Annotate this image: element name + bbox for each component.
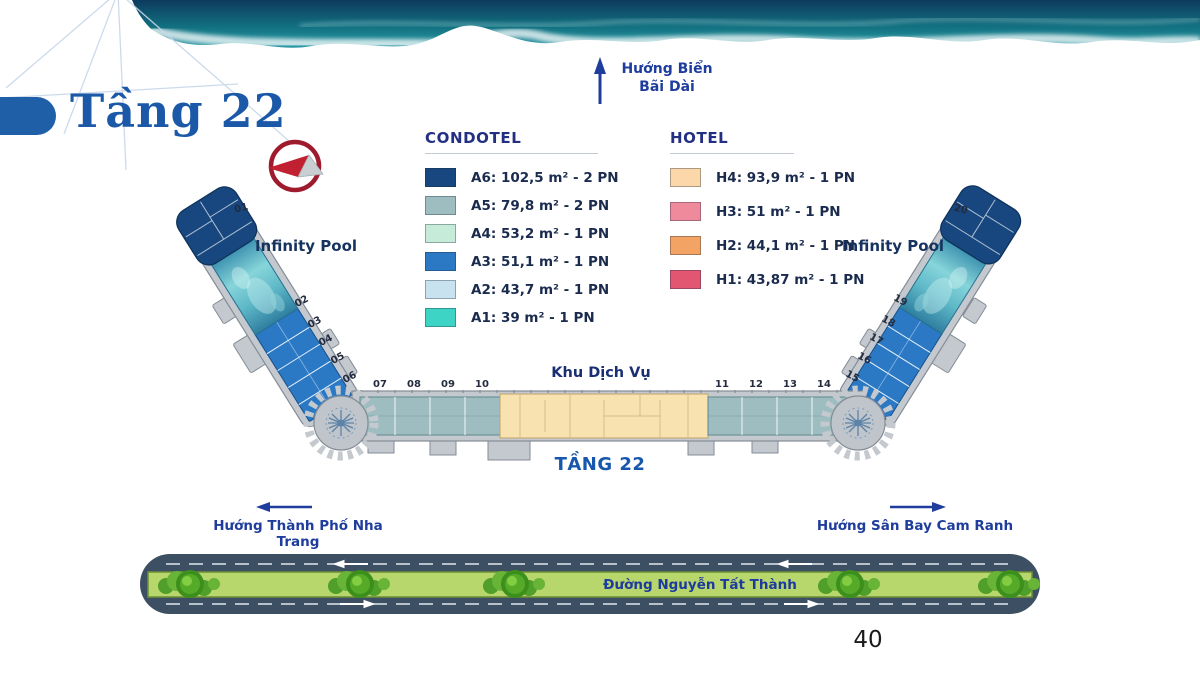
legend-item-a5: A5: 79,8 m² - 2 PN xyxy=(425,196,625,215)
sea-direction-label: Hướng Biển Bãi Dài xyxy=(612,61,722,97)
legend-item-h2: H2: 44,1 m² - 1 PN xyxy=(670,236,830,255)
legend-item-a2: A2: 43,7 m² - 1 PN xyxy=(425,280,625,299)
legend-label-h4: H4: 93,9 m² - 1 PN xyxy=(716,170,855,186)
sea-direction-line2: Bãi Dài xyxy=(612,79,722,97)
page-title: Tầng 22 xyxy=(70,84,287,138)
title-pill-decoration xyxy=(0,97,56,135)
legend-hotel-header: HOTEL xyxy=(670,129,830,147)
compass-icon xyxy=(268,142,323,190)
legend-condotel-underline xyxy=(425,153,598,154)
legend-label-a5: A5: 79,8 m² - 2 PN xyxy=(471,198,609,214)
legend-swatch-a5 xyxy=(425,196,456,215)
floor-label: TẦNG 22 xyxy=(555,451,646,475)
legend-swatch-h2 xyxy=(670,236,701,255)
legend-swatch-a4 xyxy=(425,224,456,243)
svg-text:07: 07 xyxy=(373,379,387,390)
svg-text:14: 14 xyxy=(817,379,831,390)
legend-swatch-h1 xyxy=(670,270,701,289)
legend-item-a1: A1: 39 m² - 1 PN xyxy=(425,308,625,327)
road-name-label: Đường Nguyễn Tất Thành xyxy=(603,576,797,593)
legend-swatch-a1 xyxy=(425,308,456,327)
legend-swatch-a3 xyxy=(425,252,456,271)
direction-airport-arrow-icon xyxy=(890,502,946,512)
svg-text:13: 13 xyxy=(783,379,797,390)
legend-item-a3: A3: 51,1 m² - 1 PN xyxy=(425,252,625,271)
legend-label-h1: H1: 43,87 m² - 1 PN xyxy=(716,272,864,288)
road-median xyxy=(148,572,1032,597)
legend-item-h1: H1: 43,87 m² - 1 PN xyxy=(670,270,830,289)
service-area-label: Khu Dịch Vụ xyxy=(551,365,650,381)
legend-label-h2: H2: 44,1 m² - 1 PN xyxy=(716,238,855,254)
road: Đường Nguyễn Tất Thành xyxy=(140,554,1040,614)
legend-label-a1: A1: 39 m² - 1 PN xyxy=(471,310,595,326)
legend-swatch-a2 xyxy=(425,280,456,299)
svg-text:12: 12 xyxy=(749,379,763,390)
svg-text:09: 09 xyxy=(441,379,455,390)
page-number: 40 xyxy=(843,627,893,653)
legend-swatch-h4 xyxy=(670,168,701,187)
direction-city-label: Hướng Thành Phố Nha Trang xyxy=(193,518,403,550)
sea-direction-arrow-icon xyxy=(594,57,606,104)
legend-swatch-h3 xyxy=(670,202,701,221)
legend-label-a6: A6: 102,5 m² - 2 PN xyxy=(471,170,619,186)
legend-label-a3: A3: 51,1 m² - 1 PN xyxy=(471,254,609,270)
slide: 01 02 03 04 05 06 07 08 09 10 11 12 13 1… xyxy=(0,0,1200,675)
legend-label-a4: A4: 53,2 m² - 1 PN xyxy=(471,226,609,242)
legend-label-h3: H3: 51 m² - 1 PN xyxy=(716,204,841,220)
legend-item-h4: H4: 93,9 m² - 1 PN xyxy=(670,168,830,187)
legend-condotel-header: CONDOTEL xyxy=(425,129,625,147)
sea-direction-line1: Hướng Biển xyxy=(612,61,722,79)
legend-swatch-a6 xyxy=(425,168,456,187)
legend-hotel-underline xyxy=(670,153,794,154)
infinity-pool-label-left: Infinity Pool xyxy=(255,237,357,255)
svg-text:10: 10 xyxy=(475,379,489,390)
legend-label-a2: A2: 43,7 m² - 1 PN xyxy=(471,282,609,298)
direction-airport-label: Hướng Sân Bay Cam Ranh xyxy=(808,518,1022,534)
direction-city-arrow-icon xyxy=(256,502,312,512)
legend-item-a6: A6: 102,5 m² - 2 PN xyxy=(425,168,625,187)
legend-item-a4: A4: 53,2 m² - 1 PN xyxy=(425,224,625,243)
center-block xyxy=(352,391,866,460)
legend-condotel: CONDOTEL A6: 102,5 m² - 2 PN A5: 79,8 m²… xyxy=(425,129,625,336)
svg-text:08: 08 xyxy=(407,379,421,390)
legend-hotel: HOTEL H4: 93,9 m² - 1 PN H3: 51 m² - 1 P… xyxy=(670,129,830,304)
legend-item-h3: H3: 51 m² - 1 PN xyxy=(670,202,830,221)
infinity-pool-label-right: Infinity Pool xyxy=(842,237,944,255)
svg-text:11: 11 xyxy=(715,379,729,390)
